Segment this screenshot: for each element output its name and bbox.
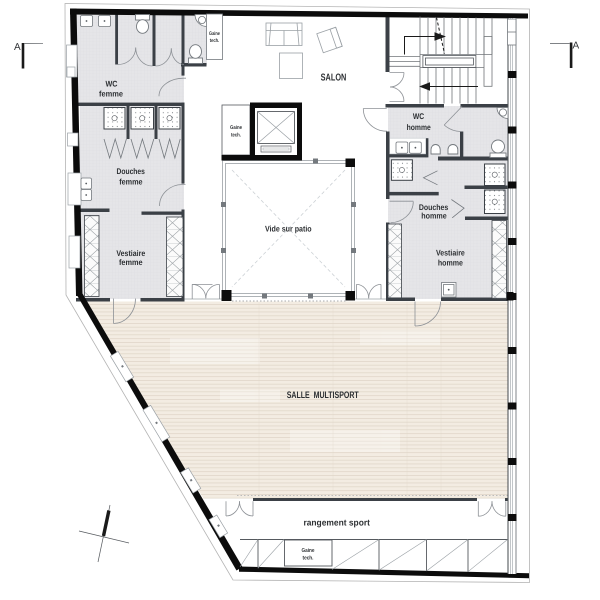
- svg-text:homme: homme: [421, 212, 447, 221]
- svg-text:WC: WC: [106, 80, 118, 89]
- svg-text:Vestiaire: Vestiaire: [436, 248, 465, 257]
- svg-text:Douches: Douches: [117, 167, 146, 176]
- svg-text:Gaine: Gaine: [302, 547, 315, 554]
- svg-text:homme: homme: [438, 259, 463, 268]
- svg-text:SALLE MULTISPORT: SALLE MULTISPORT: [287, 390, 359, 401]
- svg-text:femme: femme: [119, 258, 143, 267]
- svg-text:Douches: Douches: [419, 203, 449, 212]
- svg-text:A: A: [14, 42, 21, 53]
- svg-text:Gaine: Gaine: [230, 125, 242, 131]
- svg-text:femme: femme: [99, 90, 123, 99]
- svg-text:WC: WC: [413, 112, 424, 121]
- svg-text:Gaine: Gaine: [209, 31, 220, 37]
- svg-text:femme: femme: [119, 178, 143, 187]
- svg-text:A: A: [573, 41, 580, 52]
- svg-text:SALON: SALON: [321, 73, 347, 84]
- svg-text:rangement sport: rangement sport: [303, 518, 370, 528]
- svg-text:tech.: tech.: [210, 38, 220, 44]
- svg-text:Vestiaire: Vestiaire: [116, 249, 145, 258]
- svg-text:homme: homme: [407, 123, 431, 132]
- svg-text:Vide sur patio: Vide sur patio: [265, 225, 312, 234]
- svg-text:tech.: tech.: [303, 555, 314, 562]
- svg-text:tech.: tech.: [231, 133, 241, 139]
